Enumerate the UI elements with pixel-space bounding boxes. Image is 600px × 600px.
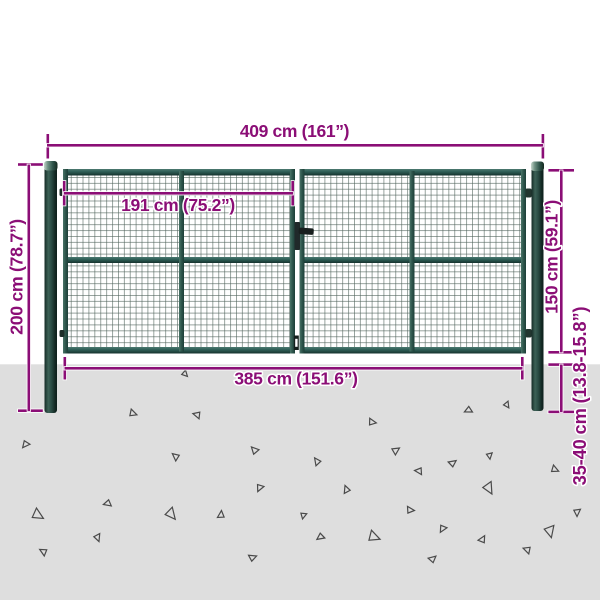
- svg-text:385 cm (151.6”): 385 cm (151.6”): [234, 369, 357, 389]
- svg-text:35-40 cm (13.8-15.8”): 35-40 cm (13.8-15.8”): [569, 307, 590, 486]
- svg-text:200 cm (78.7”): 200 cm (78.7”): [7, 219, 27, 335]
- svg-text:191 cm (75.2”): 191 cm (75.2”): [121, 195, 235, 215]
- svg-text:150 cm (59.1”): 150 cm (59.1”): [542, 200, 562, 314]
- svg-text:409 cm (161”): 409 cm (161”): [240, 121, 349, 141]
